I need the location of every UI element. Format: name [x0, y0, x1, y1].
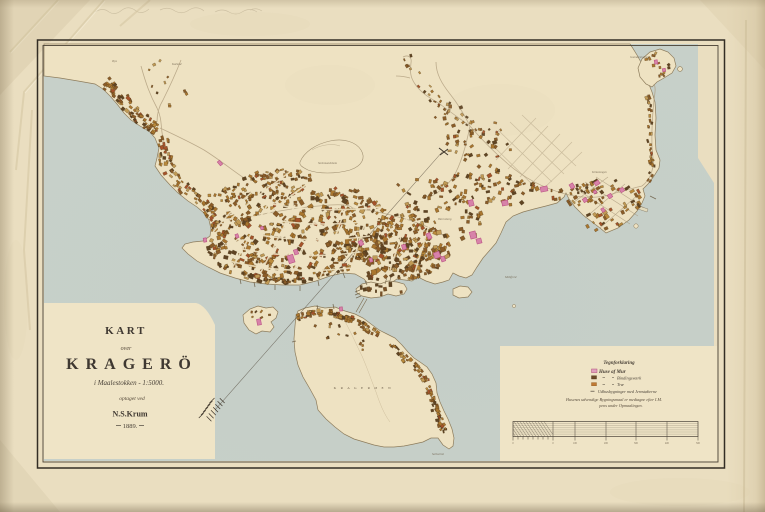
svg-text:Husenes udvendige Bygningsmaal: Husenes udvendige Bygningsmaal er medtag…: [565, 397, 662, 402]
svg-text:K R A G E R Ø E N: K R A G E R Ø E N: [334, 386, 393, 390]
svg-text:KART: KART: [105, 325, 147, 337]
svg-text:Kalstad: Kalstad: [171, 62, 182, 66]
svg-text:KRAGERÖ: KRAGERÖ: [66, 355, 198, 373]
svg-text:Kirketangen: Kirketangen: [591, 170, 607, 174]
svg-text:Biornsborg: Biornsborg: [438, 217, 452, 221]
svg-text:Træ: Træ: [617, 382, 624, 387]
svg-text:Bindingsværk: Bindingsværk: [617, 375, 642, 380]
svg-text:1889.: 1889.: [123, 423, 138, 430]
svg-text:Tegnforklaring: Tegnforklaring: [603, 361, 635, 366]
svg-text:Midtfjord: Midtfjord: [504, 275, 517, 279]
svg-text:Udhusbygninger med Jernstøbern: Udhusbygninger med Jernstøberne: [598, 389, 657, 394]
svg-text:Øya: Øya: [111, 59, 117, 63]
svg-text:Huse af Mur: Huse af Mur: [598, 370, 626, 375]
svg-text:Steinmandsheia: Steinmandsheia: [318, 161, 337, 165]
svg-text:over: over: [121, 346, 132, 352]
svg-text:pens under Opmaalingen.: pens under Opmaalingen.: [598, 403, 642, 408]
svg-text:N.S.Krum: N.S.Krum: [112, 410, 147, 419]
svg-text:Gunnarsholmen: Gunnarsholmen: [630, 55, 650, 59]
svg-text:optaget ved: optaget ved: [119, 396, 145, 402]
svg-text:i Maalestokken - 1:5000.: i Maalestokken - 1:5000.: [94, 379, 164, 387]
svg-text:Saltverket: Saltverket: [432, 452, 444, 456]
